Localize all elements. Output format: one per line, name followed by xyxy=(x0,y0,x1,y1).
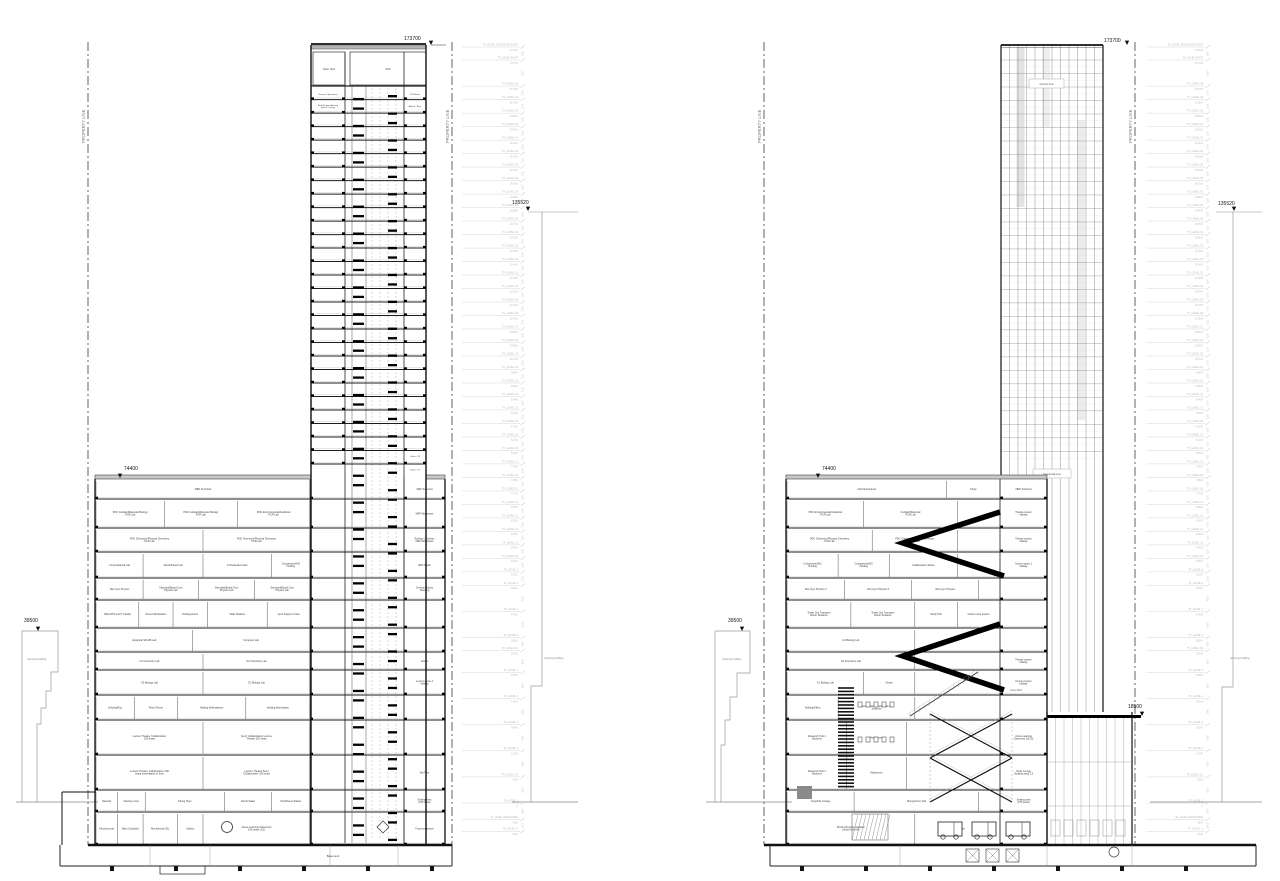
room-label: Computer Lab xyxy=(243,639,259,642)
marker-74400: 74400 xyxy=(822,466,836,472)
stair-flight xyxy=(353,394,364,396)
level-name: TF_LEVEL 21 xyxy=(1187,405,1203,409)
basement-notch xyxy=(160,866,205,874)
room-label: Washroom xyxy=(870,771,882,774)
level-elevation: 74800 xyxy=(1196,478,1204,482)
level-break-tick xyxy=(1206,233,1211,236)
slab-nub xyxy=(404,259,407,261)
level-dim: 3100 xyxy=(523,319,525,325)
stair-flight xyxy=(388,364,397,366)
stair-flight xyxy=(388,839,397,841)
level-name: TF_LEVEL 30 xyxy=(502,284,518,288)
room-label: Science Operations xyxy=(318,93,338,96)
atrium-features: Green Roof xyxy=(797,512,1022,802)
level-elevation: 139900 xyxy=(1195,195,1204,199)
room-label: Compressed/N2Holding xyxy=(282,562,301,568)
level-dim: 6000 xyxy=(1208,734,1210,740)
level-dim: 3100 xyxy=(1208,562,1210,568)
level-name: TF_LEVEL 13 xyxy=(1187,513,1203,517)
room-label: Research Hub 2Students xyxy=(808,770,827,776)
level-dim: 3100 xyxy=(523,535,525,541)
slab-nub xyxy=(404,232,407,234)
level-dim: 3100 xyxy=(1208,575,1210,581)
slab-nub xyxy=(404,354,407,356)
level-break-tick xyxy=(1206,818,1211,821)
room-label: Lecture Theatre Semi'Collaborative' 150 … xyxy=(243,770,271,776)
level-break-tick xyxy=(521,287,526,290)
level-dim: 3100 xyxy=(1208,130,1210,136)
level-name: TF_LEVEL 37 xyxy=(502,189,518,193)
level-break-tick xyxy=(1206,138,1211,141)
level-name: TF_LEVEL 38 xyxy=(502,176,518,180)
slab-nub xyxy=(423,300,426,302)
level-name: TF_LEVEL 35 xyxy=(502,216,518,220)
level-dim: 6000 xyxy=(523,734,525,740)
level-elevation: 164700 xyxy=(1195,87,1204,91)
levels-column: TF_LEVEL TECHNICAL ROOF1737003000TF_LEVE… xyxy=(1147,42,1210,836)
level-name: TF_LEVEL 22 xyxy=(1187,392,1203,396)
level-name: TF_LEVEL 12 xyxy=(1187,527,1203,531)
level-dim: 3100 xyxy=(523,427,525,433)
level-elevation: 146100 xyxy=(1195,168,1204,172)
room-label: Mechanical level xyxy=(858,488,877,491)
level-dim: 3100 xyxy=(523,508,525,514)
level-elevation: 99600 xyxy=(1196,370,1204,374)
room-label: Suite n 77 xyxy=(410,469,421,472)
level-elevation: 38000 xyxy=(1196,638,1204,642)
stair-flight xyxy=(388,418,397,420)
level-elevation: 77900 xyxy=(511,465,519,469)
slab-nub xyxy=(342,246,345,248)
level-name: TF_LEVEL 29 xyxy=(502,297,518,301)
slab-nub xyxy=(404,138,407,140)
level-break-tick xyxy=(521,489,526,492)
level-elevation: 143000 xyxy=(510,181,519,185)
level-break-tick xyxy=(521,570,526,573)
slab-nub xyxy=(311,219,314,221)
stair-flight xyxy=(353,107,364,109)
slab-nub xyxy=(423,327,426,329)
stair-flight xyxy=(353,286,364,288)
level-elevation: 155400 xyxy=(510,127,519,131)
room-label: G1 Biology Lab xyxy=(817,681,835,684)
stair-flight xyxy=(388,283,397,285)
room-label: Input Support Union xyxy=(277,613,300,616)
slab-nub xyxy=(404,435,407,437)
level-dim: 6000 xyxy=(523,708,525,714)
level-break-tick xyxy=(1206,671,1211,674)
level-elevation: 130600 xyxy=(510,235,519,239)
level-name: TF_LEVEL 3 xyxy=(1189,720,1204,724)
room-label: Study Hub xyxy=(930,613,942,616)
slab-nub xyxy=(311,394,314,396)
room-label: Rooftop ChemistryMEP Workspace xyxy=(415,537,436,543)
level-elevation: 173700 xyxy=(1195,48,1204,52)
level-dim: 3100 xyxy=(523,292,525,298)
room-label: Wet Gym Physics 2 xyxy=(805,588,827,591)
level-break-tick xyxy=(1206,165,1211,168)
slab-nub xyxy=(423,354,426,356)
level-name: TF_LEVEL 35 xyxy=(1187,216,1203,220)
section-1-drawing: Existing building39500Existing building1… xyxy=(16,36,578,874)
existing-building-profile xyxy=(1222,212,1233,802)
level-dim: 3100 xyxy=(1208,171,1210,177)
room-label: Food preparation xyxy=(415,827,434,830)
level-name: TF_LEVEL 4 xyxy=(504,694,519,698)
room-label: Skills Stations xyxy=(229,613,245,616)
level-dim: 3100 xyxy=(523,454,525,460)
level-break-tick xyxy=(1206,408,1211,411)
slab-nub xyxy=(1000,788,1003,790)
level-dim: 3100 xyxy=(523,467,525,473)
stair-flight xyxy=(388,579,397,581)
stair-flight xyxy=(353,313,364,315)
footing xyxy=(430,866,434,871)
slab-nub xyxy=(1000,598,1003,600)
level-elevation: 44000 xyxy=(511,612,519,616)
level-elevation: -3800 xyxy=(511,820,518,824)
slab-nub xyxy=(311,462,314,464)
slab-nub xyxy=(311,259,314,261)
room-label: Dining Room hall xyxy=(907,800,926,803)
room-label: PDC Chemistry/Physical ChemistryPCR Lab xyxy=(237,537,277,543)
slab-nub xyxy=(423,435,426,437)
level-break-tick xyxy=(1206,58,1211,61)
level-elevation: 152300 xyxy=(510,141,519,145)
slab-nub xyxy=(311,327,314,329)
level-break-tick xyxy=(1206,327,1211,330)
stair-flight xyxy=(388,821,397,823)
level-dim: 2700 xyxy=(523,822,525,828)
slab-nub xyxy=(342,151,345,153)
room-label: Holding/Disc xyxy=(108,706,123,709)
level-elevation: 56200 xyxy=(511,559,519,563)
stair-flight xyxy=(353,206,364,208)
level-dim: 3100 xyxy=(1208,211,1210,217)
level-name: TF_LEVEL 1 xyxy=(1189,798,1204,802)
level-break-tick xyxy=(521,246,526,249)
level-name: TF_LEVEL 5 xyxy=(1189,668,1204,672)
level-name: TF_LEVEL 34 xyxy=(1187,230,1203,234)
level-elevation: 74800 xyxy=(511,478,519,482)
level-break-tick xyxy=(521,327,526,330)
level-dim: 3100 xyxy=(523,117,525,123)
level-dim: 6000 xyxy=(1208,621,1210,627)
room-label: Network xyxy=(102,800,112,803)
stair-flight xyxy=(388,525,397,527)
slab-nub xyxy=(423,408,426,410)
level-name: TF_LEVEL 37 xyxy=(1187,189,1203,193)
level-break-tick xyxy=(521,58,526,61)
level-name: TF_LEVEL 42 xyxy=(502,122,518,126)
level-dim: 3100 xyxy=(1208,508,1210,514)
slab-nub xyxy=(423,97,426,99)
slab-nub xyxy=(342,300,345,302)
level-name: TF_LEVEL 6 xyxy=(1189,633,1204,637)
level-break-tick xyxy=(521,671,526,674)
level-name: TF_LEVEL 27 xyxy=(1187,324,1203,328)
level-elevation: 133700 xyxy=(510,222,519,226)
level-elevation: 136800 xyxy=(1195,208,1204,212)
stair-flight xyxy=(353,296,364,298)
slab-nub xyxy=(342,124,345,126)
room-label: PDC Environmental/AnalyticalPCR Lab xyxy=(809,511,843,517)
level-break-tick xyxy=(1206,45,1211,48)
level-break-tick xyxy=(521,543,526,546)
level-elevation: 173700 xyxy=(510,48,519,52)
level-break-tick xyxy=(521,368,526,371)
level-elevation: 105800 xyxy=(510,343,519,347)
level-dim: 3100 xyxy=(523,252,525,258)
room-label: RJI Room xyxy=(410,94,420,96)
level-elevation: 6000 xyxy=(1197,778,1203,782)
level-break-tick xyxy=(521,775,526,778)
room-label: Computational Lab xyxy=(109,564,131,567)
room-label: Holding/Office xyxy=(805,706,821,709)
level-break-tick xyxy=(521,98,526,101)
stair-flight xyxy=(353,259,364,261)
slab-nub xyxy=(311,246,314,248)
level-dim: 3100 xyxy=(1208,238,1210,244)
level-break-tick xyxy=(1206,381,1211,384)
slab-nub xyxy=(423,165,426,167)
room-label: Server Workstation xyxy=(145,613,167,616)
stair-flight xyxy=(353,672,364,674)
room-label: Gallery xyxy=(186,827,195,830)
level-break-tick xyxy=(1206,300,1211,303)
room-label: Admin Office xyxy=(409,105,422,108)
marker-18500: 18500 xyxy=(1128,704,1142,710)
level-dim: 6000 xyxy=(523,595,525,601)
slab-nub xyxy=(311,111,314,113)
slab-nub xyxy=(423,219,426,221)
van xyxy=(972,822,996,836)
footing xyxy=(110,866,114,871)
level-dim: 5000 xyxy=(1208,658,1210,664)
room-label: MEP Technical xyxy=(1016,488,1032,491)
level-name: TF_LEVEL TECHNICAL ROOF xyxy=(1168,42,1204,46)
level-dim: 3100 xyxy=(1208,184,1210,190)
slab-nub xyxy=(311,381,314,383)
stair-flight xyxy=(388,704,397,706)
level-break-tick xyxy=(521,300,526,303)
stair-flight xyxy=(353,511,364,513)
stair-flight xyxy=(388,597,397,599)
level-elevation: 12000 xyxy=(511,752,519,756)
level-name: TF_LEVEL 43 xyxy=(502,109,518,113)
slab-nub xyxy=(311,124,314,126)
architectural-sheet: Existing building39500Existing building1… xyxy=(0,0,1280,881)
slab-nub xyxy=(404,462,407,464)
facade-shade xyxy=(1077,120,1085,420)
slab-nub xyxy=(311,273,314,275)
level-break-tick xyxy=(521,649,526,652)
slab-nub xyxy=(342,232,345,234)
level-name: TF_LEVEL 18 xyxy=(1187,446,1203,450)
level-dim: 3100 xyxy=(523,481,525,487)
level-name: TF_LEVEL 19 xyxy=(502,432,518,436)
level-elevation: 81000 xyxy=(1196,451,1204,455)
level-break-tick xyxy=(521,610,526,613)
stair-flight xyxy=(388,660,397,662)
room-label: Indoor cycle lockers xyxy=(968,613,991,616)
level-dim: 3100 xyxy=(523,184,525,190)
level-name: TF_LEVEL 45 xyxy=(502,82,518,86)
level-elevation: 68600 xyxy=(1196,505,1204,509)
level-break-tick xyxy=(521,125,526,128)
slab-nub xyxy=(342,165,345,167)
slab-nub xyxy=(423,313,426,315)
level-name: TF_LEVEL 44 xyxy=(1187,95,1203,99)
slab-nub xyxy=(1000,668,1003,670)
stair-flight xyxy=(353,502,364,504)
slab-nub xyxy=(404,626,407,628)
building-sections-drawing: Existing building39500Existing building1… xyxy=(0,0,1280,881)
room-label: Stand Based Lab xyxy=(163,564,183,567)
slab-nub xyxy=(1000,550,1003,552)
slab-nub xyxy=(1000,650,1003,652)
slab-nub xyxy=(404,526,407,528)
marker-arrow xyxy=(1125,41,1129,45)
level-name: TF_LEVEL 3 xyxy=(504,720,519,724)
stair-flight xyxy=(353,797,364,799)
level-dim: 3100 xyxy=(1208,292,1210,298)
level-break-tick xyxy=(521,422,526,425)
slab-nub xyxy=(423,286,426,288)
stair-flight xyxy=(388,794,397,796)
slab-nub xyxy=(404,97,407,99)
level-dim: 3100 xyxy=(523,386,525,392)
room-label: Theatre systemhallway xyxy=(1015,511,1031,517)
level-dim: 3100 xyxy=(1208,386,1210,392)
room-label: Theatre systemhallway xyxy=(1015,537,1031,543)
washroom-fixture xyxy=(882,737,886,742)
stair-flight xyxy=(388,543,397,545)
level-dim: 3000 xyxy=(523,50,525,56)
level-name: TF_LEVEL 39 xyxy=(502,162,518,166)
level-break-tick xyxy=(1206,557,1211,560)
slab-nub xyxy=(404,650,407,652)
level-elevation: -6500 xyxy=(1196,832,1203,836)
level-break-tick xyxy=(1206,516,1211,519)
slab-nub xyxy=(311,138,314,140)
slab-nub xyxy=(311,165,314,167)
slab-nub xyxy=(404,448,407,450)
marker-arrow xyxy=(740,627,744,631)
marker-arrow xyxy=(1232,207,1236,211)
level-break-tick xyxy=(521,636,526,639)
level-elevation: 112000 xyxy=(1195,316,1204,320)
level-name: TF_LEVEL ROOF xyxy=(498,55,519,59)
stair-flight xyxy=(353,528,364,530)
level-elevation: 121300 xyxy=(1195,276,1204,280)
level-name: TF_LEVEL 8 xyxy=(504,581,519,585)
slab-nub xyxy=(311,205,314,207)
footing xyxy=(174,866,178,871)
level-dim: 3100 xyxy=(1208,319,1210,325)
level-break-tick xyxy=(521,273,526,276)
level-name: TF_LEVEL 5A xyxy=(502,646,518,650)
level-break-tick xyxy=(1206,98,1211,101)
level-break-tick xyxy=(1206,260,1211,263)
equipment-circle xyxy=(1109,847,1119,857)
slab-nub xyxy=(404,327,407,329)
room-label: Comm's place 1hallway xyxy=(1015,562,1033,568)
stair-flight xyxy=(353,125,364,127)
stair-flight xyxy=(388,552,397,554)
level-break-tick xyxy=(1206,179,1211,182)
existing-building-label: Existing building xyxy=(545,656,564,660)
marker-arrow xyxy=(429,41,433,45)
level-name: TF_LEVEL 41 xyxy=(502,136,518,140)
level-dim: 6000 xyxy=(523,70,525,76)
room-label: Wet Gym Physics xyxy=(110,588,130,591)
level-break-tick xyxy=(1206,273,1211,276)
level-elevation: 170700 xyxy=(510,61,519,65)
stair-flight xyxy=(353,744,364,746)
stair-flight xyxy=(388,193,397,195)
stair-flight xyxy=(388,328,397,330)
slab-nub xyxy=(342,259,345,261)
slab-nub xyxy=(404,313,407,315)
slab-nub xyxy=(311,408,314,410)
annex-building xyxy=(1047,712,1141,857)
level-name: TF_LEVEL 1A xyxy=(502,772,518,776)
stair-flight xyxy=(388,230,397,232)
slab-nub xyxy=(423,192,426,194)
stair-flight xyxy=(353,690,364,692)
room-label: Semi 'Collaborative' LectureTheatre 150 … xyxy=(241,735,273,741)
room-label: PDC Environmental/AnalyticalPCR Lab xyxy=(257,511,291,517)
level-elevation: 130600 xyxy=(1195,235,1204,239)
slab-nub xyxy=(404,124,407,126)
level-name: TF_LEVEL 9 xyxy=(504,567,519,571)
level-elevation: 158500 xyxy=(1195,114,1204,118)
roof-slab xyxy=(311,45,426,49)
level-break-tick xyxy=(1206,489,1211,492)
existing-building-profile xyxy=(531,212,542,802)
property-line-label: PROPERTY LINE xyxy=(1128,109,1133,143)
level-name: TF_LEVEL 1A xyxy=(1187,772,1203,776)
level-name: TF_LEVEL 17 xyxy=(502,459,518,463)
slab-nub xyxy=(342,381,345,383)
slab-nub xyxy=(404,178,407,180)
room-label: Basement xyxy=(327,854,340,858)
slab-nub xyxy=(1000,526,1003,528)
level-elevation: 102700 xyxy=(510,357,519,361)
levels-column: TF_LEVEL TECHNICAL ROOF1737003000TF_LEVE… xyxy=(462,42,525,836)
stair-flight xyxy=(388,650,397,652)
level-elevation: 124400 xyxy=(510,262,519,266)
level-elevation: 59300 xyxy=(511,546,519,550)
room-label: Lecture Theatre 'Collaborative'200 seats xyxy=(133,735,167,741)
level-dim: 3800 xyxy=(523,808,525,814)
level-dim: 3800 xyxy=(1208,808,1210,814)
property-line-label: PROPERTY LINE xyxy=(445,109,450,143)
slab-nub xyxy=(342,313,345,315)
level-dim: 3100 xyxy=(523,306,525,312)
stair-flight xyxy=(388,677,397,679)
stair-flight xyxy=(388,445,397,447)
room-label: Dining Hyve xyxy=(178,800,192,803)
stair-flight xyxy=(353,430,364,432)
level-break-tick xyxy=(1206,395,1211,398)
level-dim: 6000 xyxy=(1208,70,1210,76)
level-dim: 3100 xyxy=(1208,346,1210,352)
room-label: Seating Area(250 seats) xyxy=(418,798,432,804)
footing xyxy=(1184,866,1188,871)
level-elevation: 62400 xyxy=(511,532,519,536)
